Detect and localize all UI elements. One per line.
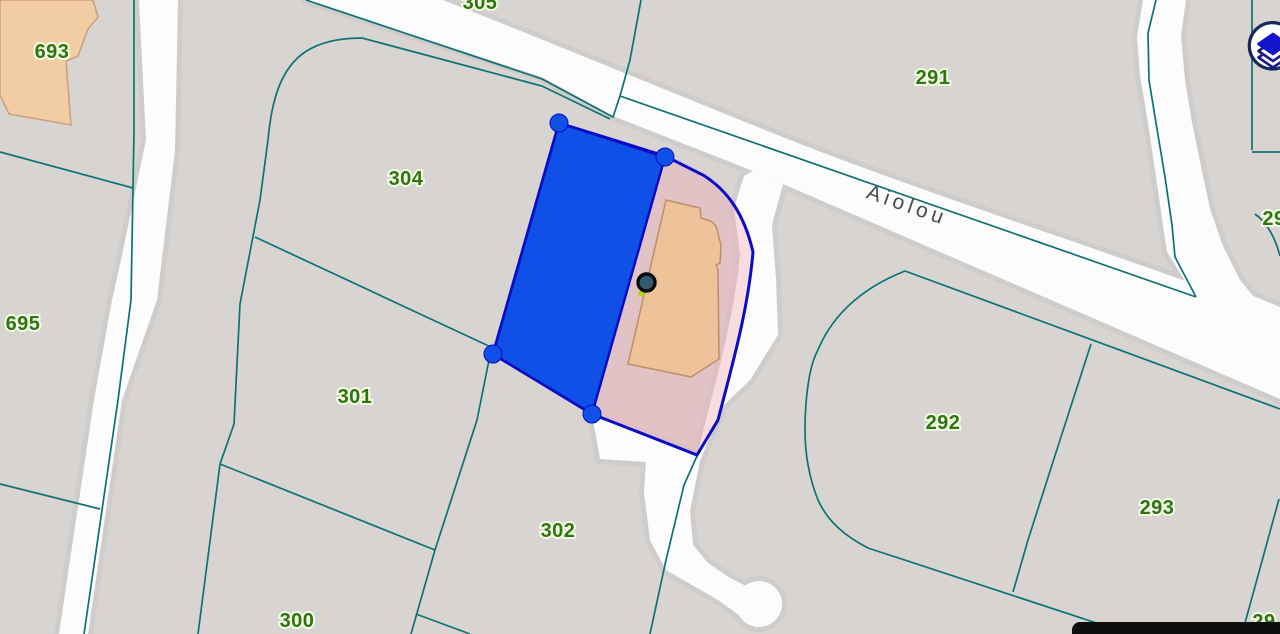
svg-text:305: 305	[463, 0, 498, 14]
svg-text:693: 693	[35, 41, 70, 63]
svg-text:301: 301	[338, 386, 373, 408]
svg-text:695: 695	[6, 313, 41, 335]
svg-text:292: 292	[926, 412, 961, 434]
svg-text:291: 291	[916, 67, 951, 89]
svg-text:304: 304	[389, 168, 424, 190]
svg-text:293: 293	[1140, 497, 1175, 519]
svg-text:302: 302	[541, 520, 576, 542]
svg-text:300: 300	[280, 610, 315, 632]
svg-text:29: 29	[1262, 208, 1280, 230]
